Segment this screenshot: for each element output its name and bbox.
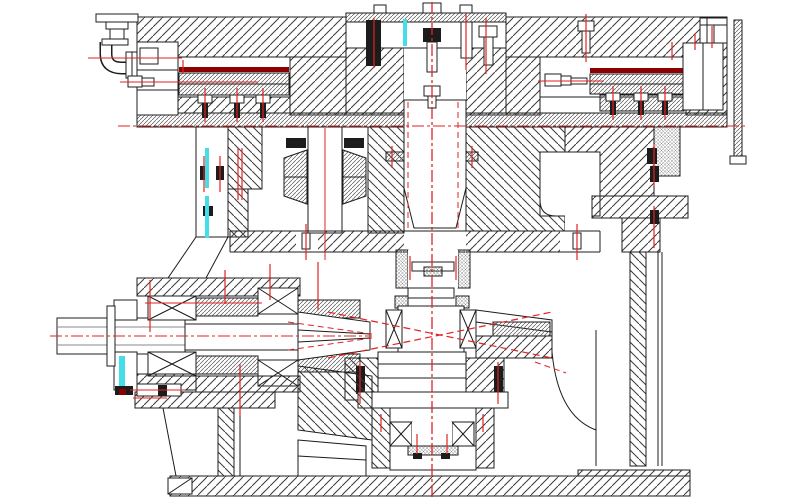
drawing-canvas <box>0 0 800 500</box>
engineering-drawing-page: Mechanical assembly cross-section engine… <box>0 0 800 500</box>
main-spindle <box>404 86 466 228</box>
